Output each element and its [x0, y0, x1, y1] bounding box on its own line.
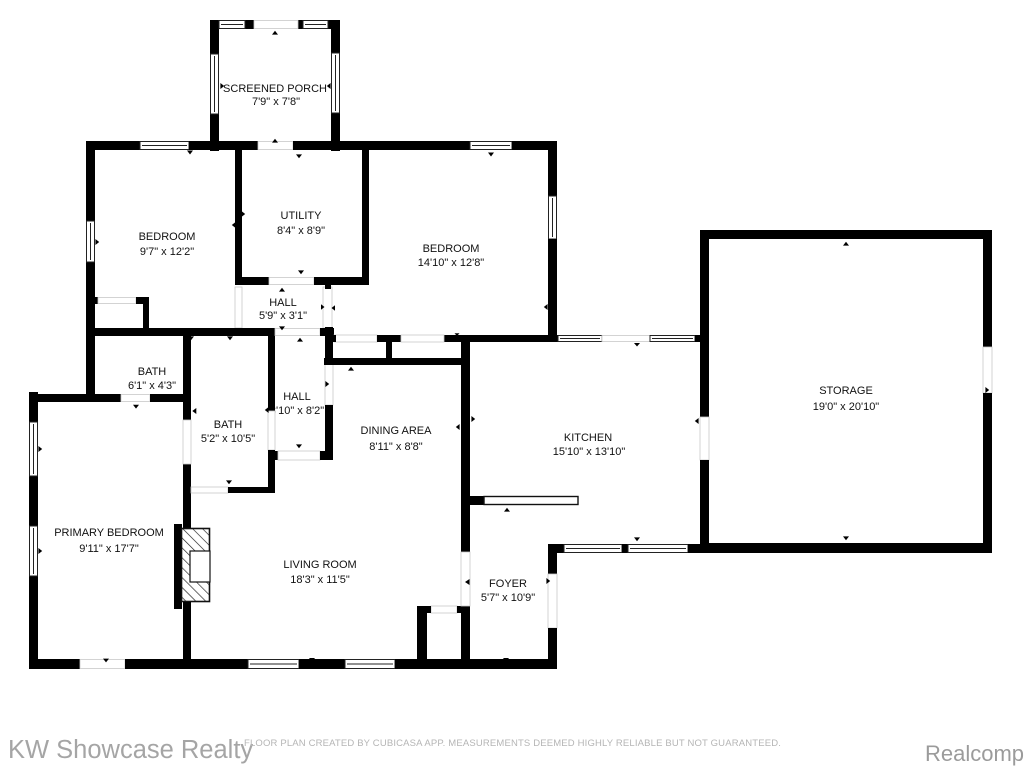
svg-text:FOYER: FOYER [489, 578, 527, 590]
svg-text:SCREENED PORCH: SCREENED PORCH [223, 83, 327, 95]
svg-text:KW Showcase Realty: KW Showcase Realty [8, 736, 253, 764]
svg-text:FLOOR PLAN CREATED BY CUBICASA: FLOOR PLAN CREATED BY CUBICASA APP. MEAS… [244, 738, 781, 749]
svg-text:6'1" x 4'3": 6'1" x 4'3" [128, 380, 176, 392]
svg-text:DINING AREA: DINING AREA [361, 425, 433, 437]
svg-text:5'9" x 3'1": 5'9" x 3'1" [259, 310, 307, 322]
svg-text:19'0" x 20'10": 19'0" x 20'10" [813, 401, 880, 413]
svg-text:3'10" x 8'2": 3'10" x 8'2" [270, 405, 324, 417]
svg-text:LIVING ROOM: LIVING ROOM [283, 559, 356, 571]
svg-text:KITCHEN: KITCHEN [564, 432, 612, 444]
svg-text:9'11" x 17'7": 9'11" x 17'7" [79, 543, 139, 555]
svg-text:BEDROOM: BEDROOM [423, 243, 480, 255]
svg-text:9'7" x 12'2": 9'7" x 12'2" [140, 246, 194, 258]
svg-text:BATH: BATH [214, 419, 243, 431]
svg-text:8'11" x 8'8": 8'11" x 8'8" [369, 441, 422, 453]
svg-text:8'4" x 8'9": 8'4" x 8'9" [277, 225, 325, 237]
svg-text:BEDROOM: BEDROOM [139, 231, 196, 243]
svg-text:HALL: HALL [269, 297, 297, 309]
svg-text:Realcomp: Realcomp [925, 741, 1024, 766]
svg-text:18'3" x 11'5": 18'3" x 11'5" [290, 574, 350, 586]
svg-text:5'7" x 10'9": 5'7" x 10'9" [481, 592, 535, 604]
svg-text:UTILITY: UTILITY [281, 210, 323, 222]
svg-text:BATH: BATH [138, 366, 167, 378]
svg-text:HALL: HALL [283, 391, 311, 403]
svg-text:7'9" x 7'8": 7'9" x 7'8" [252, 96, 300, 108]
svg-text:PRIMARY BEDROOM: PRIMARY BEDROOM [54, 527, 164, 539]
svg-text:14'10" x 12'8": 14'10" x 12'8" [418, 257, 485, 269]
svg-text:STORAGE: STORAGE [819, 385, 873, 397]
svg-text:15'10" x 13'10": 15'10" x 13'10" [553, 446, 626, 458]
svg-text:5'2" x 10'5": 5'2" x 10'5" [201, 433, 255, 445]
